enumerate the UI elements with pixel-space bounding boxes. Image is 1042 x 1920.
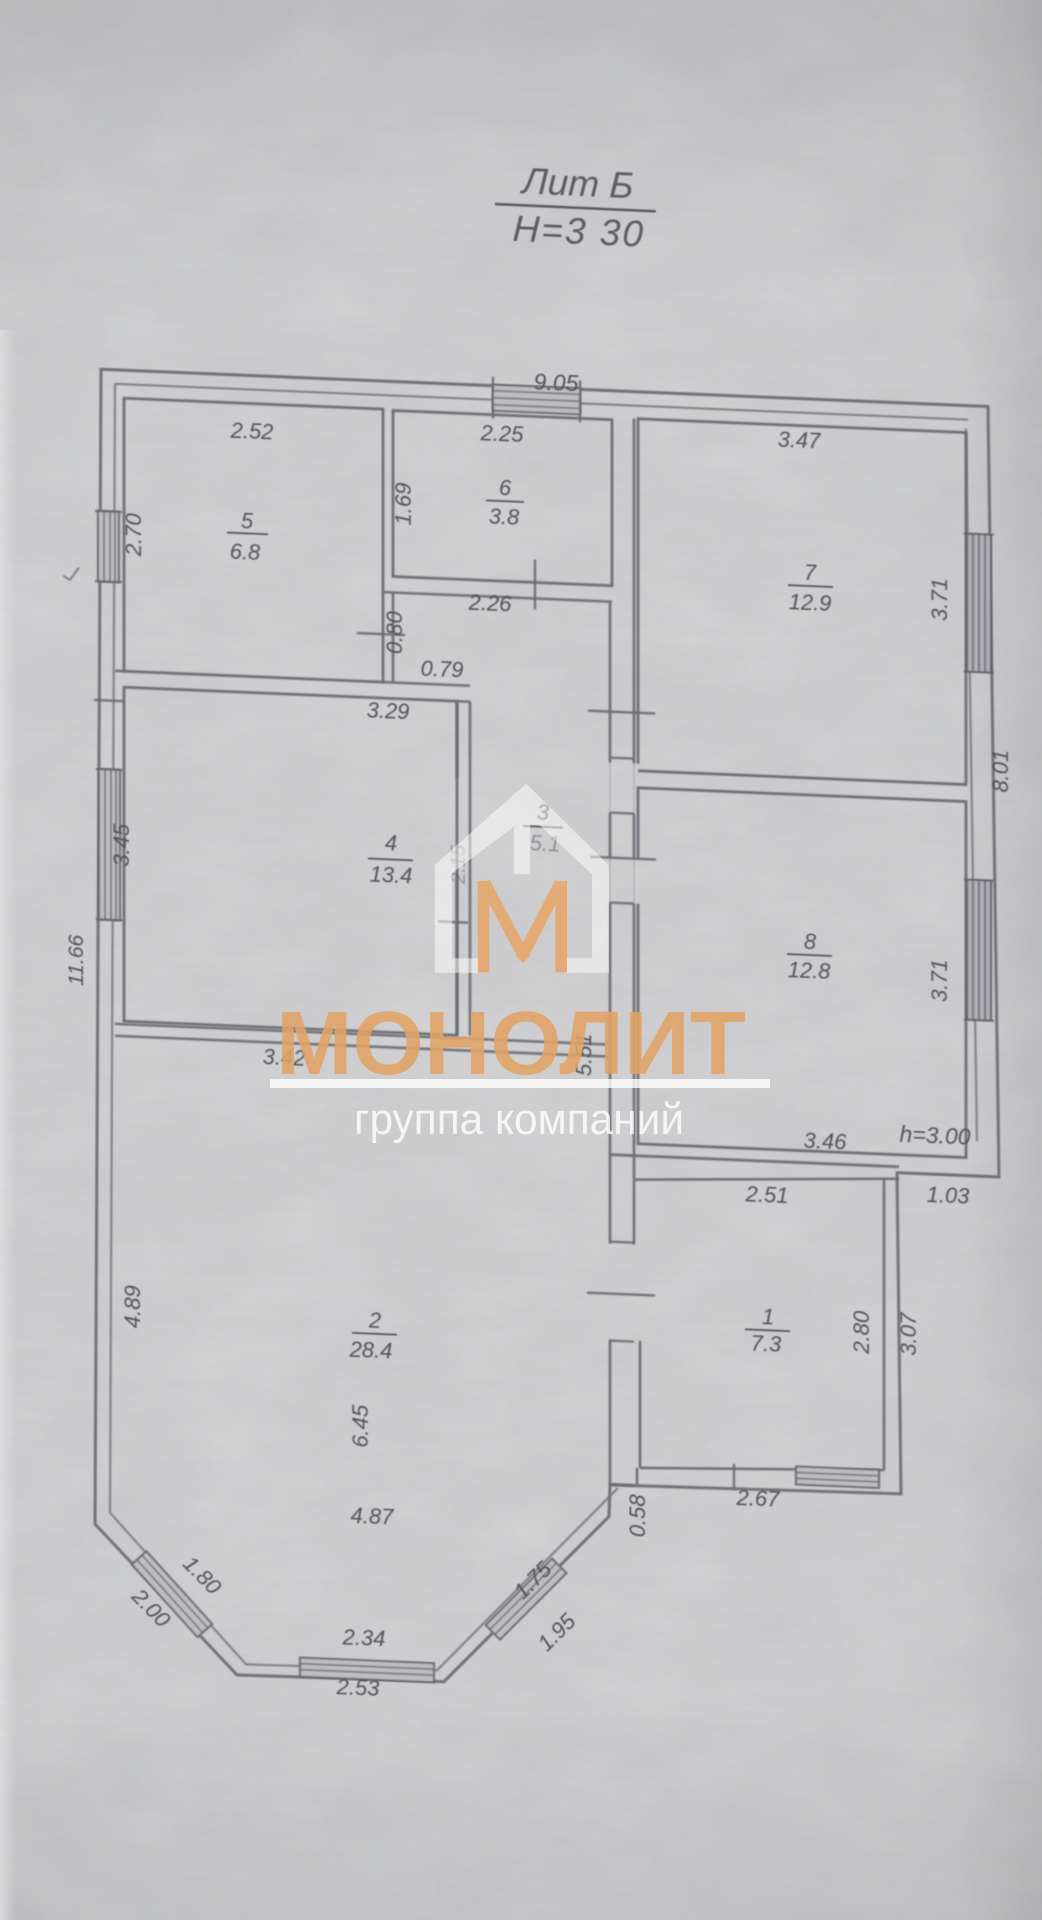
svg-text:1.03: 1.03 <box>927 1182 971 1209</box>
svg-text:28.4: 28.4 <box>349 1337 393 1364</box>
svg-text:0.79: 0.79 <box>421 656 464 683</box>
svg-text:0.80: 0.80 <box>382 610 407 655</box>
svg-text:Лит Б: Лит Б <box>520 160 635 206</box>
svg-text:2.80: 2.80 <box>849 1309 874 1355</box>
svg-text:5: 5 <box>241 508 254 534</box>
svg-text:3.45: 3.45 <box>109 822 134 867</box>
svg-text:3.47: 3.47 <box>778 427 822 454</box>
svg-text:2.25: 2.25 <box>480 420 525 447</box>
svg-text:6: 6 <box>499 475 512 501</box>
svg-text:13.4: 13.4 <box>370 862 413 889</box>
svg-text:2: 2 <box>368 1307 381 1333</box>
svg-text:6.45: 6.45 <box>348 1403 373 1448</box>
svg-text:8.01: 8.01 <box>988 749 1013 793</box>
svg-text:2.67: 2.67 <box>736 1485 781 1512</box>
svg-text:2.70: 2.70 <box>121 512 146 558</box>
svg-text:2.52: 2.52 <box>230 418 274 445</box>
svg-text:3.07: 3.07 <box>896 1311 921 1356</box>
svg-text:4: 4 <box>385 830 397 856</box>
svg-text:3.29: 3.29 <box>367 697 410 724</box>
svg-text:3.8: 3.8 <box>489 504 520 530</box>
svg-text:2.34: 2.34 <box>342 1624 386 1651</box>
svg-text:7.3: 7.3 <box>751 1331 782 1357</box>
svg-text:2.26: 2.26 <box>468 590 513 617</box>
svg-text:1: 1 <box>762 1304 774 1330</box>
svg-text:7: 7 <box>804 560 817 586</box>
svg-text:h=3.00: h=3.00 <box>900 1121 971 1150</box>
svg-text:4.87: 4.87 <box>351 1503 395 1530</box>
svg-text:9.05: 9.05 <box>534 368 579 396</box>
svg-text:3.71: 3.71 <box>927 578 952 622</box>
svg-text:12.8: 12.8 <box>788 957 832 984</box>
svg-text:11.66: 11.66 <box>65 934 88 986</box>
svg-text:6.8: 6.8 <box>230 539 261 565</box>
svg-text:Н=3 30: Н=3 30 <box>512 208 646 255</box>
svg-text:3.46: 3.46 <box>804 1128 848 1155</box>
svg-text:2.51: 2.51 <box>745 1181 789 1208</box>
svg-text:3.71: 3.71 <box>927 959 952 1003</box>
svg-text:1.69: 1.69 <box>391 482 416 526</box>
svg-text:0.58: 0.58 <box>625 1493 650 1538</box>
svg-text:2.53: 2.53 <box>336 1674 381 1701</box>
svg-text:12.9: 12.9 <box>789 589 832 616</box>
svg-text:группа компаний: группа компаний <box>354 1095 684 1144</box>
svg-text:4.89: 4.89 <box>120 1285 145 1329</box>
svg-text:8: 8 <box>804 929 817 955</box>
